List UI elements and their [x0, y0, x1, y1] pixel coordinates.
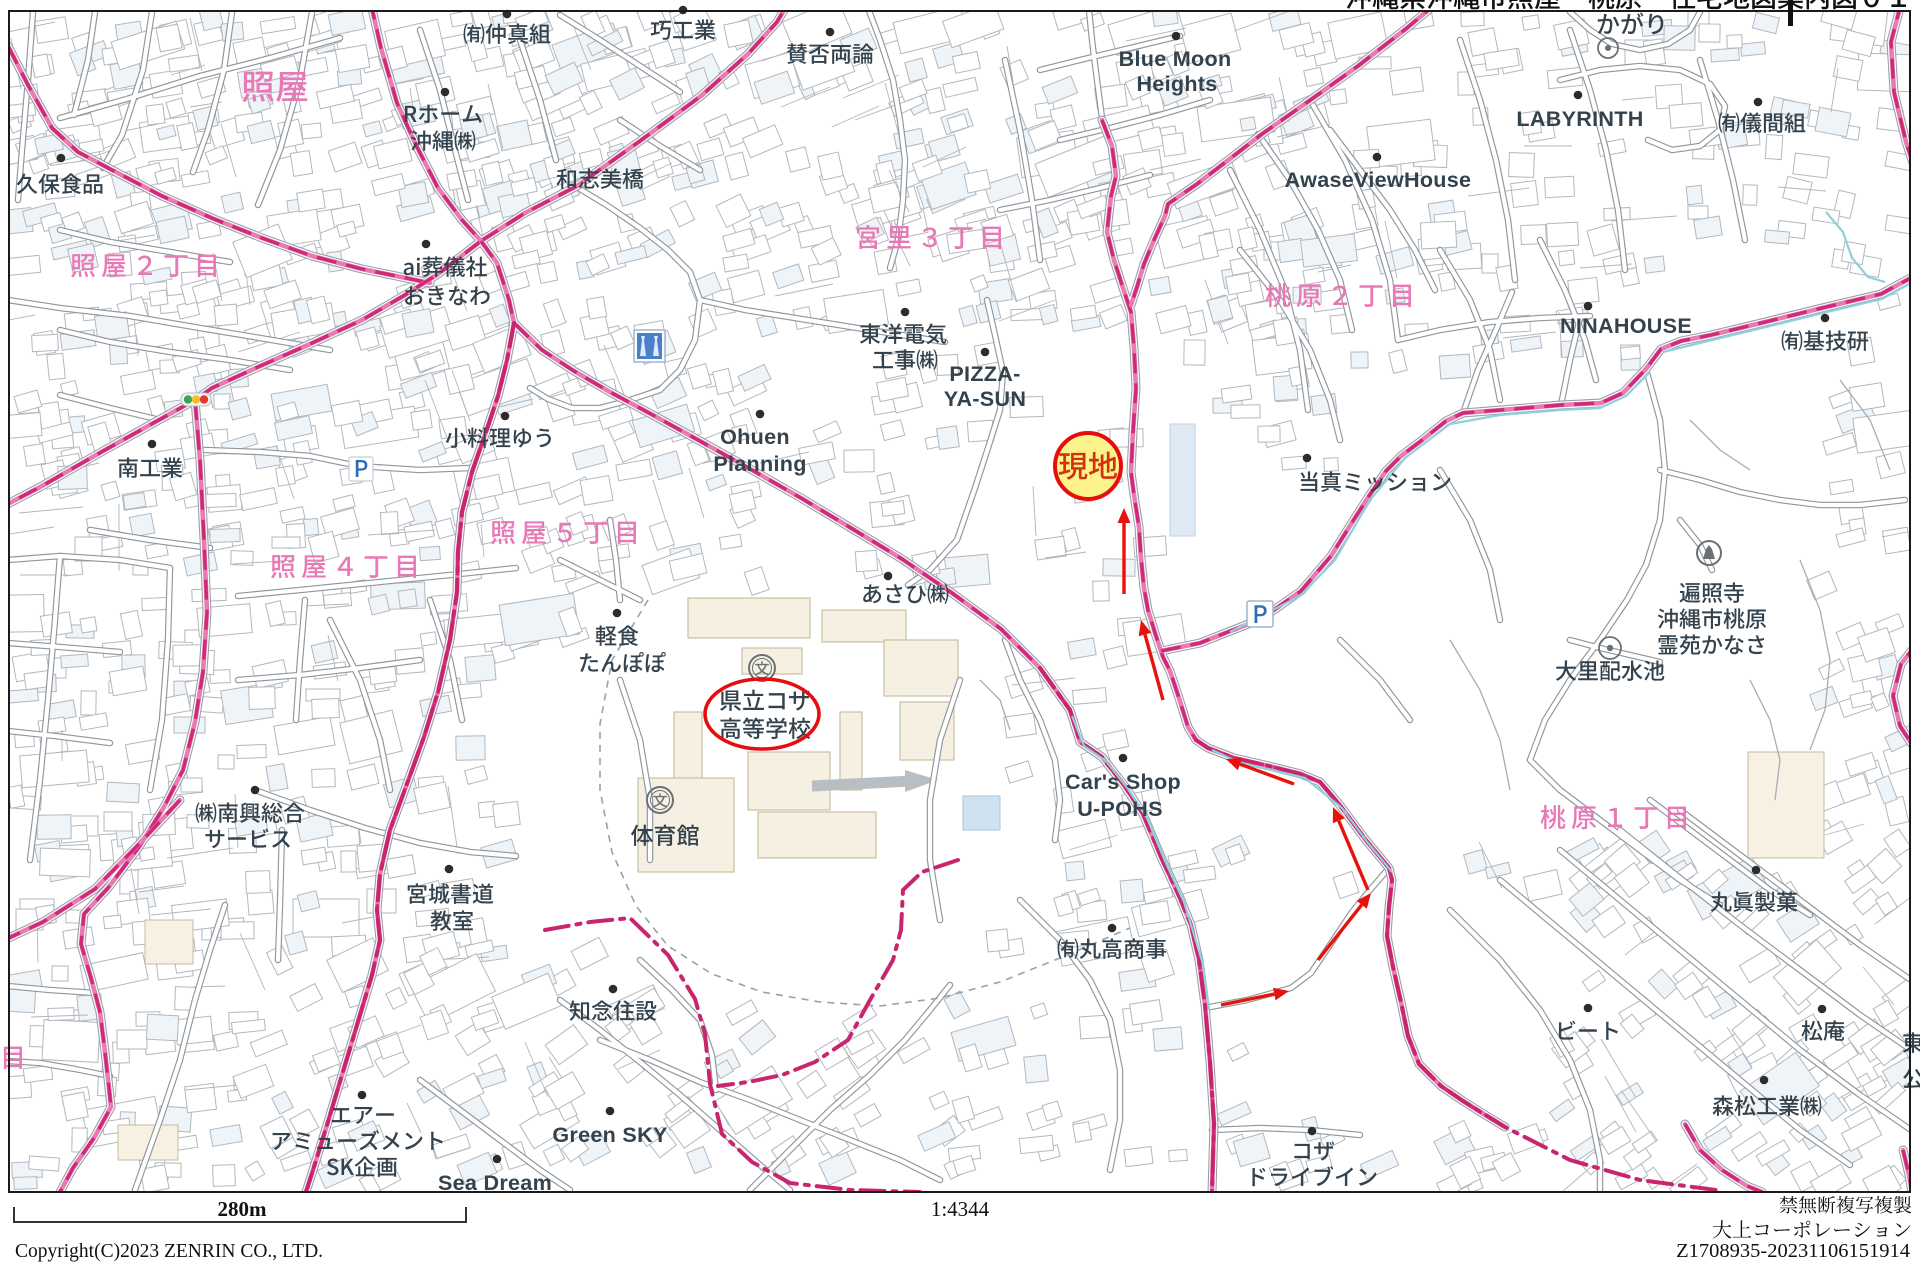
svg-text:Z1708935-20231106151914: Z1708935-20231106151914 — [1676, 1240, 1910, 1262]
svg-text:NINAHOUSE: NINAHOUSE — [1560, 313, 1692, 338]
svg-text:Heights: Heights — [1136, 71, 1217, 96]
svg-text:PIZZA-: PIZZA- — [949, 361, 1020, 386]
svg-text:280m: 280m — [218, 1197, 268, 1221]
svg-text:Ohuen: Ohuen — [720, 424, 790, 449]
svg-text:Planning: Planning — [713, 451, 806, 476]
svg-text:AwaseViewHouse: AwaseViewHouse — [1285, 167, 1472, 192]
svg-text:YA-SUN: YA-SUN — [944, 386, 1026, 411]
svg-text:1:4344: 1:4344 — [931, 1197, 990, 1221]
svg-text:Green SKY: Green SKY — [552, 1122, 668, 1147]
svg-text:Car's Shop: Car's Shop — [1065, 769, 1181, 794]
svg-text:Blue Moon: Blue Moon — [1119, 46, 1232, 71]
svg-text:U-POHS: U-POHS — [1077, 796, 1163, 821]
svg-text:LABYRINTH: LABYRINTH — [1516, 106, 1643, 131]
svg-text:Copyright(C)2023 ZENRIN CO., L: Copyright(C)2023 ZENRIN CO., LTD. — [15, 1241, 323, 1262]
